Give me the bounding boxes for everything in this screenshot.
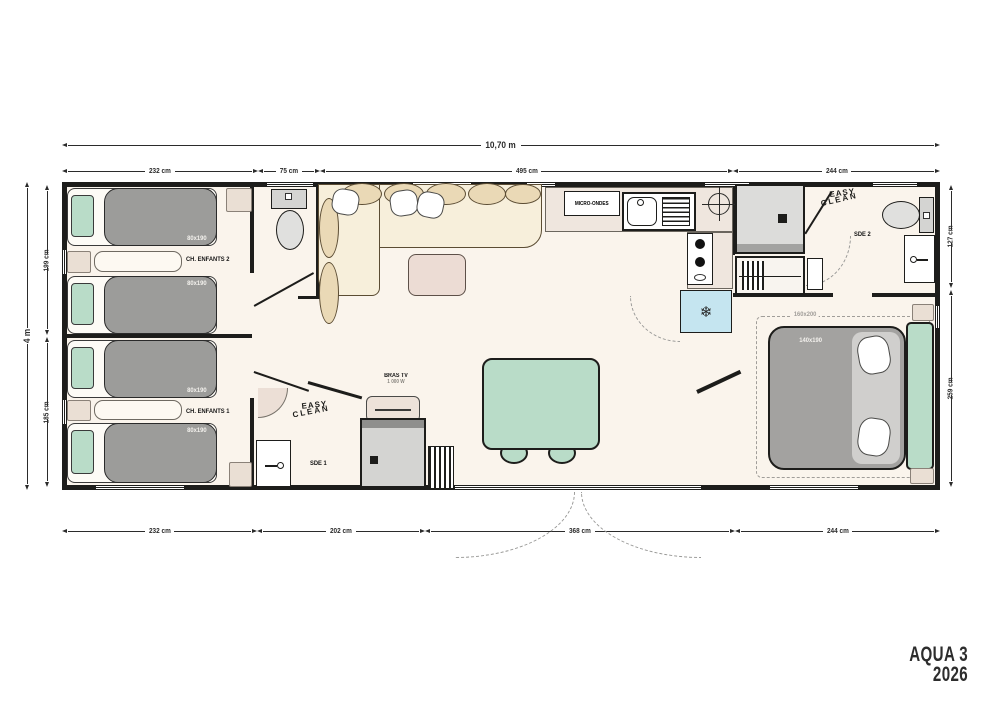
dim-right-1: 127 cm xyxy=(946,185,956,288)
dim-line xyxy=(852,531,934,532)
dim-label: 10,70 m xyxy=(486,140,516,150)
tv-bracket-line2: 1 000 W xyxy=(371,380,421,386)
wall xyxy=(298,296,318,299)
dim-label: 244 cm xyxy=(826,168,848,175)
dim-label: 368 cm xyxy=(569,528,591,535)
shower-drain-icon xyxy=(778,214,787,223)
dim-label: 259 cm xyxy=(948,378,955,400)
faucet-icon xyxy=(637,199,644,206)
dim-label: 4 m xyxy=(22,329,32,343)
toilet-bowl xyxy=(882,201,920,229)
dim-bottom-2: 202 cm xyxy=(257,526,425,536)
duvet: 80x190 xyxy=(104,423,217,483)
window xyxy=(935,306,940,328)
dim-label: 75 cm xyxy=(280,168,298,175)
faucet-spout xyxy=(265,465,277,467)
snowflake-icon: ❄ xyxy=(700,303,713,321)
duvet: 80x190 xyxy=(104,276,217,334)
sink-drainer xyxy=(662,197,690,226)
faucet-icon xyxy=(277,462,284,469)
dim-line xyxy=(264,171,276,172)
dim-line xyxy=(951,191,952,230)
pillow xyxy=(71,195,94,237)
dim-right-2: 259 cm xyxy=(946,290,956,487)
dim-line xyxy=(263,531,326,532)
dim-line xyxy=(68,145,481,146)
nightstand xyxy=(67,400,91,421)
dim-line xyxy=(68,171,145,172)
dining-table xyxy=(482,358,600,450)
duvet: 80x190 xyxy=(104,188,217,246)
toilet-bowl xyxy=(276,210,304,250)
dim-top-4: 244 cm xyxy=(733,166,940,176)
floor-plan-canvas: 10,70 m 232 cm 75 cm 495 cm 244 cm 232 c… xyxy=(0,0,991,701)
sofa-cushion xyxy=(319,262,339,324)
window xyxy=(267,182,313,187)
entry-door-arc-right xyxy=(581,492,701,558)
room-label-kids2: CH. ENFANTS 2 xyxy=(186,256,229,263)
dim-line xyxy=(175,171,252,172)
burner-icon xyxy=(695,239,705,249)
pillow xyxy=(71,430,94,474)
dim-overall-width: 10,70 m xyxy=(62,140,940,150)
single-bed: 80x190 xyxy=(67,340,217,398)
dim-left-2: 185 cm xyxy=(42,337,52,487)
duvet: 80x190 xyxy=(104,340,217,398)
dim-line xyxy=(47,343,48,406)
flush-button xyxy=(923,212,930,219)
room-label-sde1: SDE 1 xyxy=(310,460,327,467)
entry-door-arc-left xyxy=(455,492,575,558)
single-bed: 80x190 xyxy=(67,188,217,246)
shower-sde1 xyxy=(360,418,426,488)
wall xyxy=(807,293,833,297)
dim-label: 127 cm xyxy=(948,226,955,248)
dim-top-3: 495 cm xyxy=(320,166,733,176)
pillow xyxy=(71,347,94,389)
dim-line xyxy=(47,267,48,330)
dim-line xyxy=(951,243,952,282)
nightstand xyxy=(67,251,91,273)
bed-size-label: 80x190 xyxy=(187,387,207,394)
dim-bottom-1: 232 cm xyxy=(62,526,257,536)
dim-line xyxy=(302,171,314,172)
bed-size-label: 80x190 xyxy=(187,280,207,287)
shelf-unit xyxy=(807,258,823,290)
cabinet xyxy=(226,188,252,212)
model-year: 2026 xyxy=(890,665,968,685)
dim-label: 199 cm xyxy=(44,249,51,271)
shower-drain-icon xyxy=(370,456,378,464)
bed-size-label: 80x190 xyxy=(187,235,207,242)
nightstand xyxy=(912,304,934,321)
model-badge: AQUA 3 2026 xyxy=(890,645,968,685)
dim-line xyxy=(741,531,823,532)
window xyxy=(873,182,917,187)
dim-label: 185 cm xyxy=(44,401,51,423)
dim-line xyxy=(739,171,822,172)
window xyxy=(96,485,184,490)
ceiling-light-icon xyxy=(708,193,730,215)
dim-label: 232 cm xyxy=(149,168,171,175)
window xyxy=(770,485,858,490)
dim-top-2: 75 cm xyxy=(258,166,320,176)
dim-line xyxy=(951,296,952,382)
dim-line xyxy=(68,531,145,532)
dim-line xyxy=(851,171,934,172)
faucet-spout xyxy=(917,259,928,261)
dim-label: 202 cm xyxy=(330,528,352,535)
tv-bracket-label: BRAS TV 1 000 W xyxy=(368,373,424,386)
wardrobe xyxy=(735,256,805,295)
bay-door xyxy=(455,485,701,490)
single-bed: 80x190 xyxy=(67,276,217,334)
dim-line xyxy=(326,171,512,172)
single-bed: 80x190 xyxy=(67,423,217,483)
dim-line xyxy=(174,531,251,532)
bed-option-size-label: 160x200 xyxy=(792,311,818,318)
dim-label: 495 cm xyxy=(516,168,538,175)
shelf xyxy=(94,400,182,420)
dim-line xyxy=(541,171,727,172)
dim-label: 232 cm xyxy=(149,528,171,535)
room-label-sde2: SDE 2 xyxy=(854,231,871,238)
dim-line xyxy=(47,419,48,482)
cooktop-control xyxy=(694,274,706,281)
flush-button xyxy=(285,193,292,200)
washbasin xyxy=(256,440,291,487)
dim-line xyxy=(27,344,28,484)
model-name: AQUA 3 xyxy=(890,645,968,665)
wall-kids-rooms-divider xyxy=(67,334,252,338)
dim-line xyxy=(356,531,419,532)
bed-size-label: 80x190 xyxy=(187,427,207,434)
dim-bottom-4: 244 cm xyxy=(735,526,940,536)
dim-line xyxy=(47,191,48,254)
faucet-icon xyxy=(910,256,917,263)
burner-icon xyxy=(695,257,705,267)
microwave: MICRO-ONDES xyxy=(564,191,620,216)
dim-line xyxy=(521,145,934,146)
fridge: ❄ xyxy=(680,290,732,333)
sofa-cushion xyxy=(468,183,506,205)
wardrobe-rail xyxy=(739,276,801,277)
coffee-table xyxy=(408,254,466,296)
headboard xyxy=(906,322,934,470)
bed-size-label: 140x190 xyxy=(799,337,822,344)
shower-sde2 xyxy=(735,184,805,254)
sofa-cushion xyxy=(505,184,541,204)
dim-top-1: 232 cm xyxy=(62,166,258,176)
room-label-kids1: CH. ENFANTS 1 xyxy=(186,408,229,415)
dim-line xyxy=(951,395,952,481)
dim-line xyxy=(27,188,28,328)
dim-overall-height: 4 m xyxy=(22,182,32,490)
dim-left-1: 199 cm xyxy=(42,185,52,335)
water-heater xyxy=(428,446,454,489)
microwave-label: MICRO-ONDES xyxy=(575,201,609,207)
dim-label: 244 cm xyxy=(827,528,849,535)
cabinet xyxy=(229,462,252,487)
pillow xyxy=(71,283,94,325)
nightstand xyxy=(910,468,934,484)
shelf xyxy=(94,251,182,272)
shower-tray-edge xyxy=(737,244,803,252)
wall xyxy=(872,293,935,297)
shower-tray-edge xyxy=(362,420,424,428)
